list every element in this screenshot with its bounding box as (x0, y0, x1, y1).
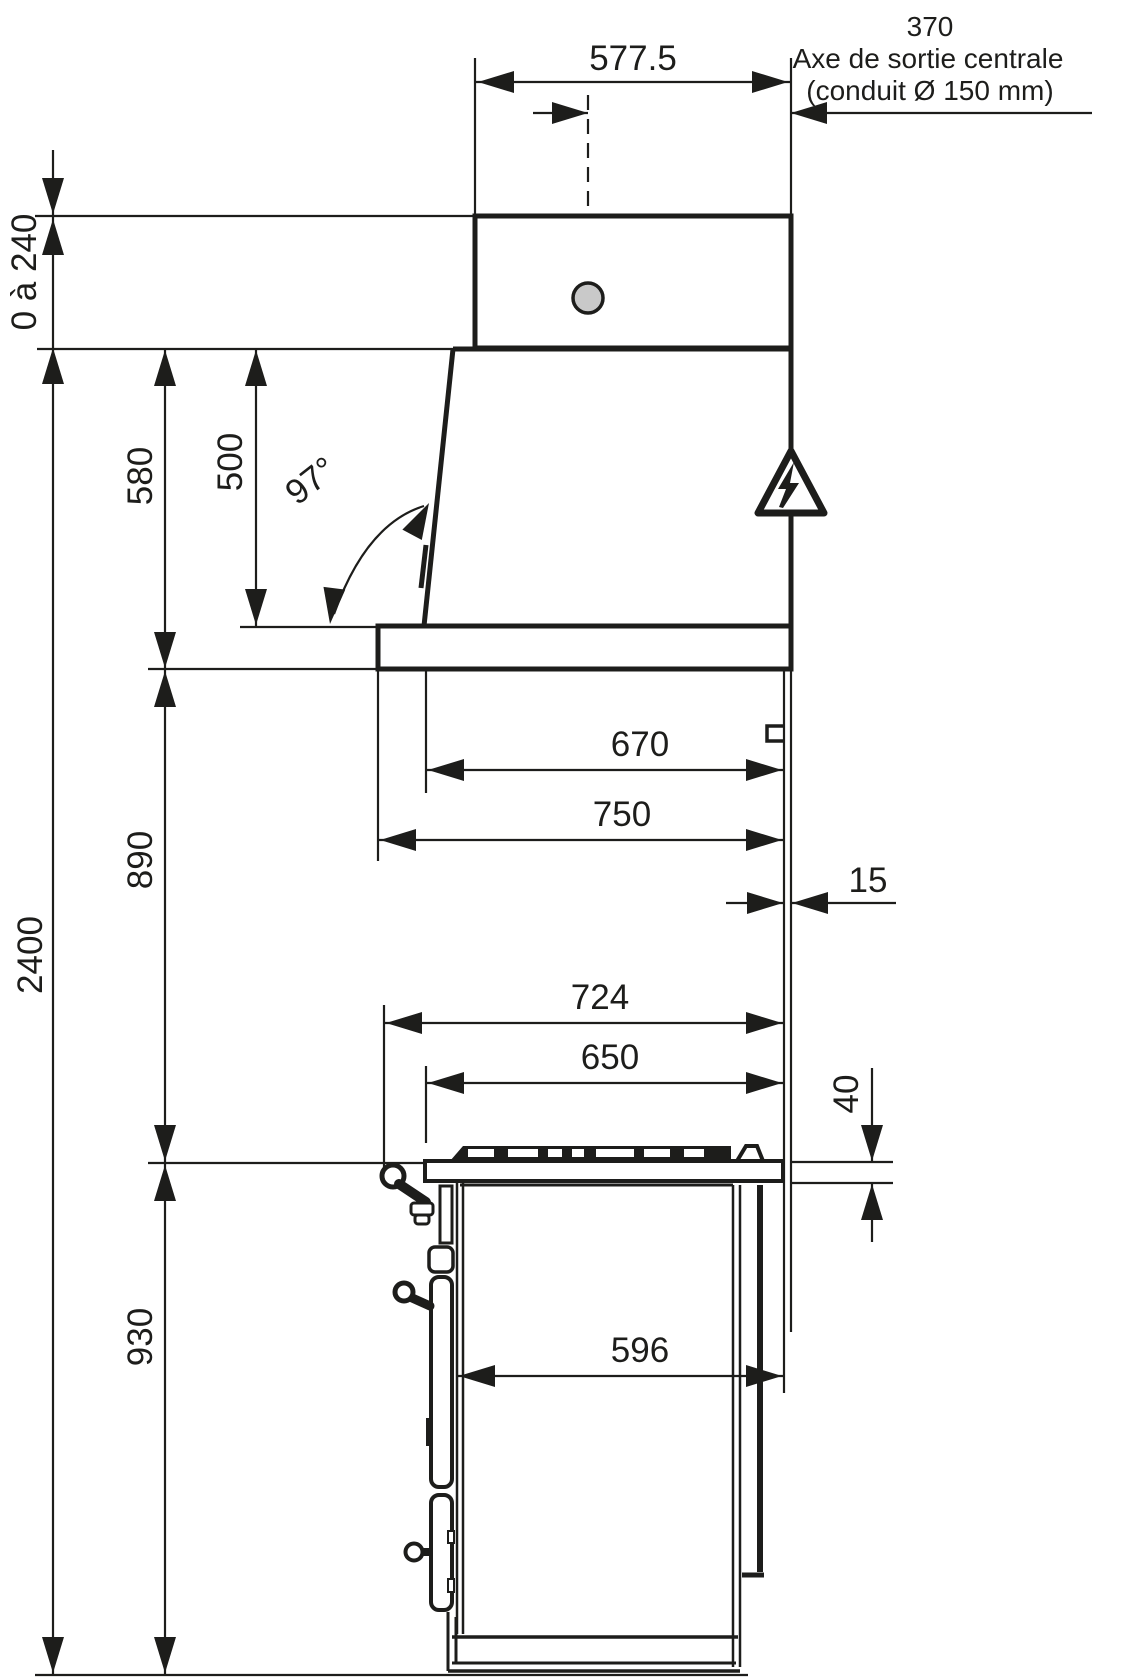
dim-hood-body-height: 500 (211, 433, 250, 491)
door-seal-mark (426, 1418, 431, 1446)
dim-range-height: 930 (121, 1308, 160, 1366)
pan-support-grate (450, 1146, 763, 1161)
dim-overall-depth: 724 (571, 978, 629, 1017)
dim-hood-total-height: 580 (121, 447, 160, 505)
technical-drawing-canvas: 577.5 370 Axe de sortie centrale (condui… (0, 0, 1148, 1679)
duct-axis-caption-line1: Axe de sortie centrale (793, 43, 1064, 74)
visor-edge-tick (421, 545, 426, 588)
control-fascia-edge (440, 1186, 452, 1243)
installation-drawing-page: 577.5 370 Axe de sortie centrale (condui… (0, 0, 1148, 1679)
drawer-knob (406, 1544, 432, 1561)
dim-hob-depth: 650 (581, 1038, 639, 1077)
dim-hood-shelf-depth: 750 (593, 795, 651, 834)
wall-mounting-bracket (767, 726, 784, 741)
dim-overall-height: 2400 (11, 916, 50, 994)
dim-body-depth: 596 (611, 1331, 669, 1370)
dim-duct-offset: 370 (907, 11, 954, 42)
duct-axis-caption-line2: (conduit Ø 150 mm) (806, 75, 1053, 106)
grate-end-ramp (737, 1146, 763, 1161)
hood-body (421, 348, 791, 626)
dim-adjustable-height: 0 à 240 (5, 214, 44, 331)
duct-outlet-circle (573, 283, 603, 313)
hood-shelf (378, 626, 791, 669)
dim-visor-angle: 97° (278, 449, 344, 512)
electrical-hazard-icon (758, 451, 824, 513)
hood-visor-slant (424, 349, 453, 626)
dim-wall-clearance: 15 (849, 861, 888, 900)
dim-hood-inner-depth: 670 (611, 725, 669, 764)
dim-worktop-thickness: 40 (827, 1075, 866, 1114)
worktop-slab (425, 1161, 783, 1181)
hinge-cover-tab (429, 1247, 453, 1272)
plinth-base (448, 1612, 740, 1671)
range-body (457, 1181, 764, 1667)
chimney-box (475, 216, 791, 348)
dim-chimney-width: 577.5 (589, 39, 677, 78)
oven-door (395, 1277, 452, 1487)
dim-hood-to-worktop: 890 (121, 831, 160, 889)
lower-drawer (406, 1495, 455, 1610)
oven-door-handle (395, 1283, 430, 1306)
